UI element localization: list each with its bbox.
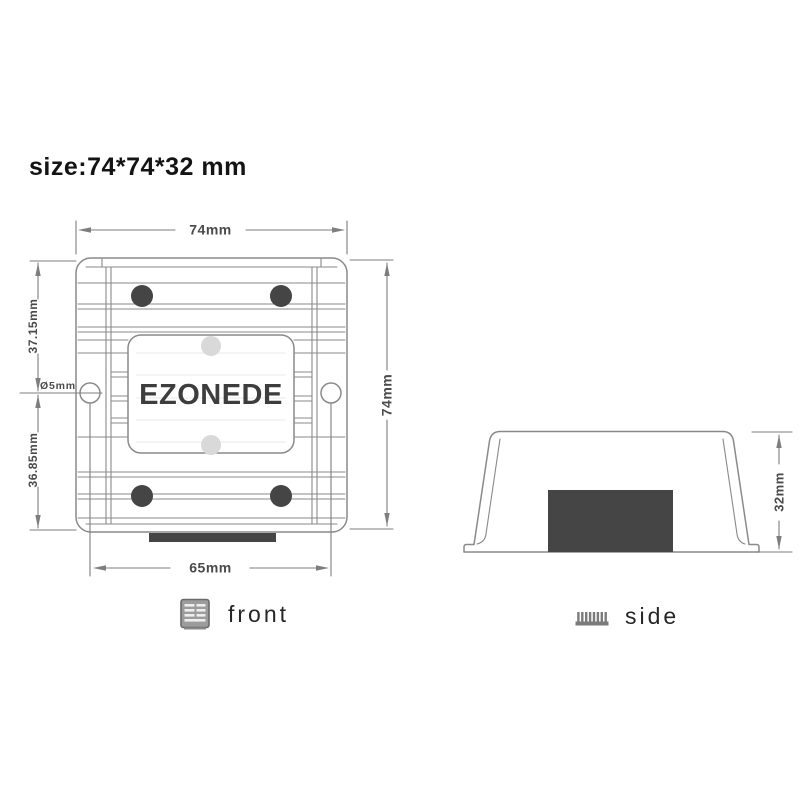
product-dimension-sheet: size:74*74*32 mm	[0, 0, 800, 800]
side-base-block	[548, 490, 673, 552]
side-caption-label: side	[625, 603, 679, 630]
brand-label: EZONEDE	[139, 379, 283, 411]
side-view-drawing: 32mm	[464, 432, 792, 553]
top-center-screw-recess	[201, 336, 221, 356]
dim-side-height: 32mm	[752, 432, 792, 552]
screw-icon	[270, 285, 292, 307]
screw-icon	[270, 485, 292, 507]
right-mounting-hole	[321, 383, 341, 403]
screw-icon	[131, 485, 153, 507]
dim-mount-spacing-label: 65mm	[189, 560, 231, 576]
dim-upper-left-label: 37.15mm	[26, 299, 40, 354]
screw-icon	[131, 285, 153, 307]
side-caption: side	[574, 600, 679, 632]
front-caption: front	[179, 597, 289, 631]
front-caption-label: front	[228, 601, 289, 628]
dim-width-label: 74mm	[189, 222, 231, 238]
heatsink-side-icon	[574, 606, 610, 632]
heatsink-front-icon	[179, 597, 211, 631]
front-base-bar	[149, 533, 276, 542]
front-view-drawing: EZONEDE	[76, 258, 347, 542]
technical-drawing-canvas: EZONEDE 74mm	[0, 0, 800, 800]
dim-width-top: 74mm	[76, 221, 347, 254]
dim-lower-left-label: 36.85mm	[26, 433, 40, 488]
bottom-center-screw-recess	[201, 435, 221, 455]
dim-height-label: 74mm	[379, 374, 395, 416]
dim-side-height-label: 32mm	[772, 472, 787, 512]
dim-height-right: 74mm	[350, 260, 395, 529]
dim-hole-diameter-label: Ø5mm	[40, 380, 76, 392]
